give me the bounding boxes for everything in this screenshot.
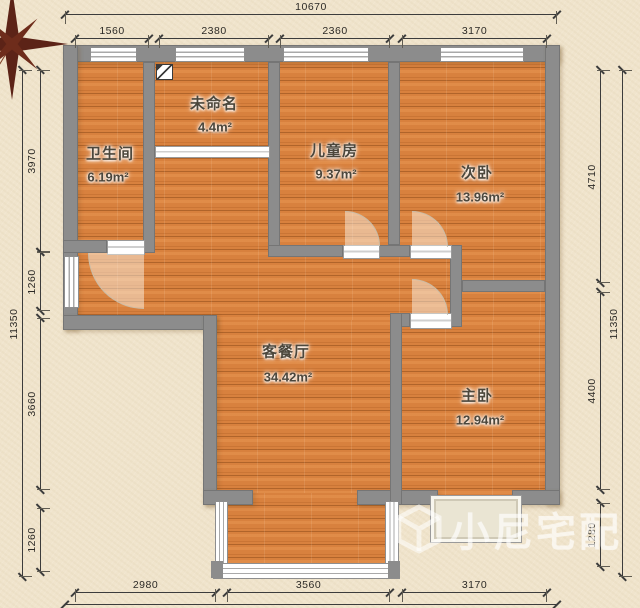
wall-kids-second-divider bbox=[388, 62, 400, 245]
window-hall-left bbox=[64, 256, 79, 308]
room-label-living-dining: 客餐厅 bbox=[262, 341, 310, 362]
wall-second-master-divider bbox=[462, 280, 545, 292]
wall-outer-bottom-a bbox=[203, 490, 253, 505]
room-label-second-bedroom: 次卧 bbox=[461, 162, 493, 183]
dim-left-seg1: 3970 bbox=[40, 70, 41, 252]
wall-bathroom-east bbox=[143, 62, 155, 253]
dim-bottom-seg1: 2980 bbox=[75, 592, 216, 593]
wall-master-west bbox=[390, 313, 402, 505]
dim-left-seg3: 3660 bbox=[40, 318, 41, 490]
dim-right-seg3: 1280 bbox=[600, 503, 601, 567]
window-balcony-right bbox=[385, 501, 399, 567]
dim-bottom-seg2: 3560 bbox=[227, 592, 390, 593]
room-area-second-bedroom: 13.96m² bbox=[456, 190, 504, 205]
room-area-master-bedroom: 12.94m² bbox=[456, 413, 504, 428]
door-sill-second-bedroom bbox=[410, 245, 452, 259]
window-balcony-left bbox=[215, 501, 228, 567]
dim-right-total: 11350 bbox=[622, 70, 623, 577]
window-unnamed-top bbox=[175, 47, 245, 62]
dim-right-seg2: 4400 bbox=[600, 292, 601, 490]
dim-left-total: 11350 bbox=[22, 70, 23, 577]
wall-bedrooms-south-a bbox=[268, 245, 343, 257]
window-second-bedroom-top bbox=[440, 47, 524, 62]
dim-top-seg2: 2380 bbox=[159, 38, 269, 39]
window-kids-top bbox=[283, 47, 369, 62]
window-bathroom-top bbox=[90, 47, 137, 62]
door-sill-kids bbox=[343, 245, 380, 259]
dim-left-seg4: 1260 bbox=[40, 508, 41, 572]
room-area-unnamed: 4.4m² bbox=[198, 120, 232, 135]
dim-left-seg2: 1260 bbox=[40, 252, 41, 311]
dim-right-seg1: 4710 bbox=[600, 70, 601, 283]
wall-outer-left-lower bbox=[203, 315, 217, 505]
wall-outer-right bbox=[545, 45, 560, 505]
wall-unnamed-east bbox=[268, 62, 280, 257]
window-balcony-bottom bbox=[213, 563, 400, 579]
dim-top-seg3: 2360 bbox=[280, 38, 390, 39]
utility-meter-icon bbox=[156, 64, 173, 80]
bay-window-master bbox=[430, 495, 522, 543]
balcony-post-left bbox=[211, 561, 223, 578]
room-area-bathroom: 6.19m² bbox=[87, 170, 128, 185]
floor-plan-canvas: 卫生间 6.19m² 未命名 4.4m² 儿童房 9.37m² 次卧 13.96… bbox=[0, 0, 640, 608]
dim-top-seg1: 1560 bbox=[75, 38, 149, 39]
wall-outer-step-horiz bbox=[63, 315, 217, 330]
room-label-bathroom: 卫生间 bbox=[86, 143, 134, 164]
dim-top-total-label: 10670 bbox=[295, 1, 327, 13]
wall-bathroom-south bbox=[63, 240, 107, 253]
door-sill-master-bedroom bbox=[410, 313, 452, 329]
dim-top-total: 10670 bbox=[65, 14, 557, 15]
dim-bottom-seg3: 3170 bbox=[402, 592, 547, 593]
room-label-kids: 儿童房 bbox=[310, 140, 358, 161]
room-label-master-bedroom: 主卧 bbox=[461, 385, 493, 406]
room-area-kids: 9.37m² bbox=[315, 167, 356, 182]
wall-bedrooms-south-b bbox=[378, 245, 410, 257]
dim-top-seg4: 3170 bbox=[402, 38, 547, 39]
balcony-post-right bbox=[388, 561, 400, 578]
room-area-living-dining: 34.42m² bbox=[264, 370, 312, 385]
room-label-unnamed: 未命名 bbox=[190, 93, 238, 114]
sliding-door-unnamed bbox=[155, 146, 270, 158]
compass-rose-icon bbox=[0, 0, 70, 102]
dim-bottom-total-line bbox=[65, 604, 557, 605]
